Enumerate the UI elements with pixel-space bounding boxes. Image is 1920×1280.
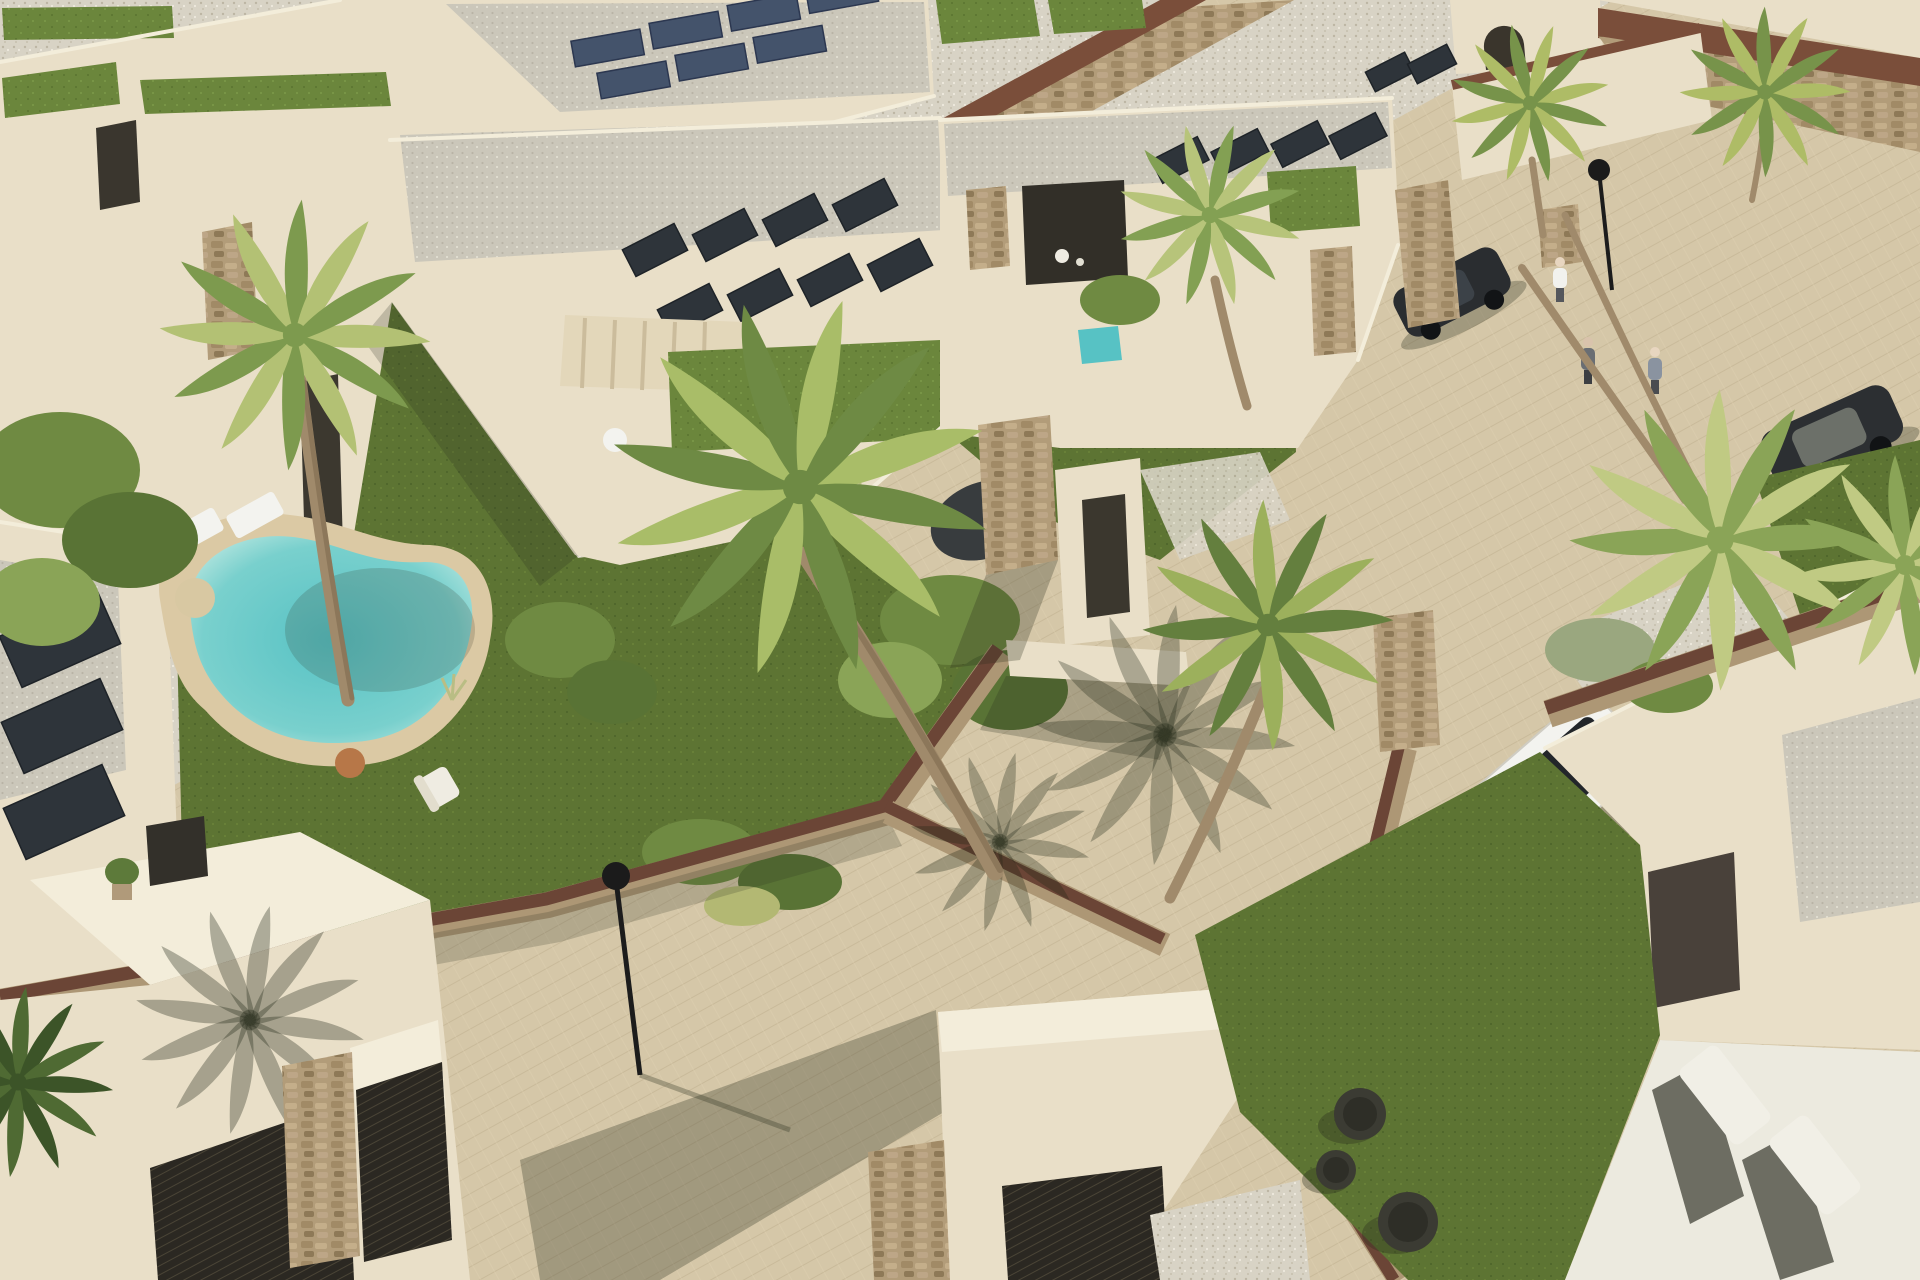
window-glass [96, 120, 140, 210]
stone-pier [966, 186, 1010, 270]
covered-terrace-opening [1022, 180, 1128, 285]
potted-tree [105, 858, 139, 886]
tall-glass-door [1082, 494, 1130, 618]
pool-step [175, 578, 215, 618]
gravel-roof [1782, 698, 1920, 922]
window-glass [1648, 852, 1740, 1008]
plunge-pool [1078, 326, 1122, 364]
stone-pier-gate [978, 415, 1058, 575]
stone-pier [868, 1140, 950, 1280]
stone-entry-panel [1310, 246, 1356, 356]
stone-pier-gate [1373, 610, 1440, 752]
entrance-gate [1002, 1166, 1168, 1280]
entry-door [146, 816, 208, 886]
driveway-gate [356, 1062, 452, 1262]
villa-development-render [0, 0, 1920, 1280]
terracotta-pot [335, 748, 365, 778]
terrace-table [1055, 249, 1069, 263]
aerial-render-stage [0, 0, 1920, 1280]
stone-pier [282, 1052, 360, 1268]
